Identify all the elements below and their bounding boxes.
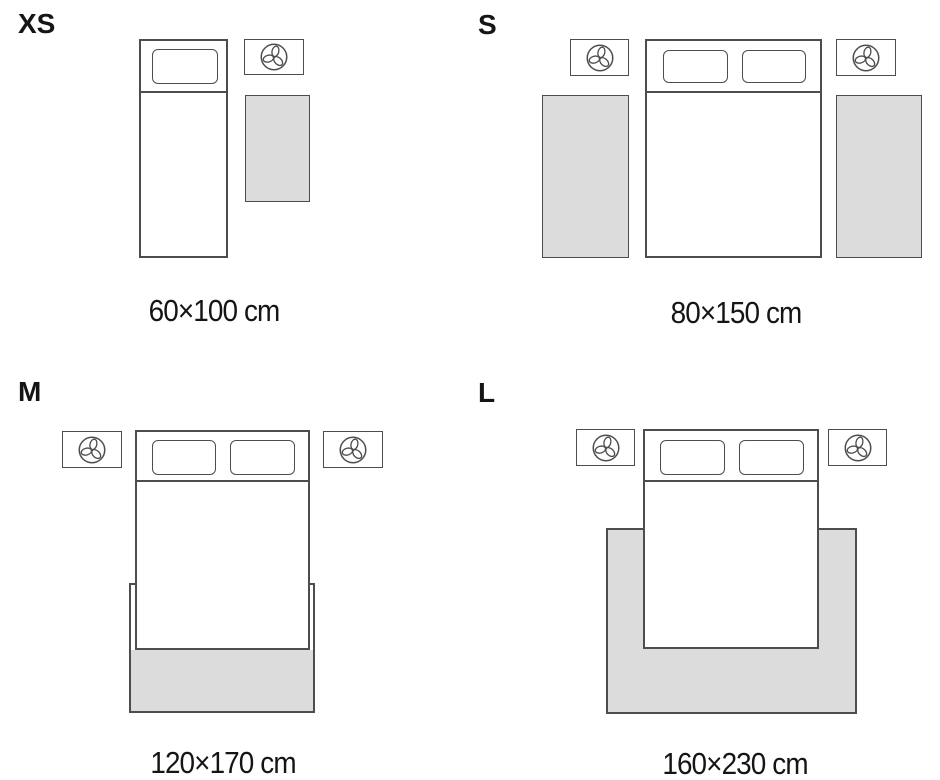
nightstand bbox=[828, 429, 887, 466]
pillow-left bbox=[660, 440, 725, 475]
single-bed bbox=[139, 39, 228, 258]
plant-icon bbox=[843, 433, 873, 463]
nightstand bbox=[836, 39, 896, 76]
pillow-right bbox=[739, 440, 804, 475]
pillow-left bbox=[663, 50, 728, 83]
size-label-l: L bbox=[478, 379, 495, 407]
pillow-right bbox=[742, 50, 806, 83]
bed-headboard bbox=[647, 41, 820, 93]
bed-headboard bbox=[141, 41, 226, 93]
plant-icon bbox=[585, 43, 615, 73]
nightstand bbox=[323, 431, 383, 468]
rug-xs bbox=[245, 95, 310, 202]
dimension-label-l: 160×230 cm bbox=[600, 748, 870, 779]
pillow-left bbox=[152, 440, 216, 475]
double-bed bbox=[645, 39, 822, 258]
double-bed bbox=[135, 430, 310, 650]
dimension-label-m: 120×170 cm bbox=[88, 747, 358, 778]
pillow bbox=[152, 49, 218, 84]
rug-m-exposed bbox=[131, 650, 313, 711]
size-label-xs: XS bbox=[18, 10, 55, 38]
dimension-label-xs: 60×100 cm bbox=[79, 295, 349, 326]
plant-icon bbox=[259, 42, 289, 72]
bed-headboard bbox=[645, 431, 817, 482]
rug-s-left bbox=[542, 95, 629, 258]
rug-s-right bbox=[836, 95, 922, 258]
pillow-right bbox=[230, 440, 295, 475]
dimension-label-s: 80×150 cm bbox=[601, 297, 871, 328]
plant-icon bbox=[338, 435, 368, 465]
plant-icon bbox=[591, 433, 621, 463]
bed-headboard bbox=[137, 432, 308, 482]
size-label-m: M bbox=[18, 378, 41, 406]
nightstand bbox=[576, 429, 635, 466]
size-label-s: S bbox=[478, 11, 497, 39]
plant-icon bbox=[851, 43, 881, 73]
nightstand bbox=[62, 431, 122, 468]
nightstand bbox=[570, 39, 629, 76]
rug-size-guide: XS 60×100 cm S bbox=[0, 0, 940, 780]
plant-icon bbox=[77, 435, 107, 465]
double-bed bbox=[643, 429, 819, 649]
nightstand bbox=[244, 39, 304, 75]
